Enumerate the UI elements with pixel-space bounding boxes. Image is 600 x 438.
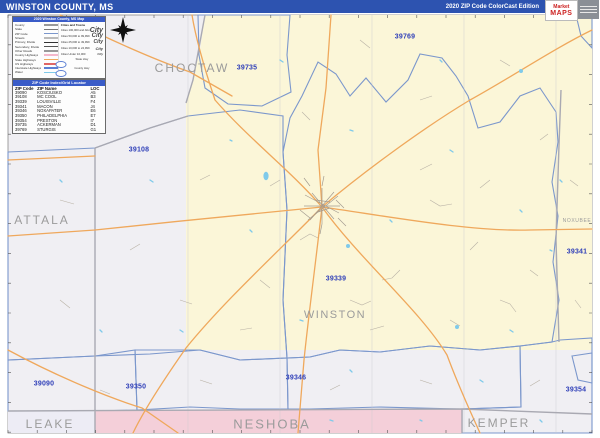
header-bar: WINSTON COUNTY, MS 2020 ZIP Code ColorCa… — [0, 0, 545, 13]
city-sample: City — [97, 52, 103, 56]
legend-item: Water — [15, 70, 58, 74]
table-row: 39769STURGISG1 — [13, 128, 105, 133]
county-label-neshoba: NESHOBA — [233, 417, 311, 432]
page-title: WINSTON COUNTY, MS — [6, 2, 114, 12]
legend-swatch — [44, 33, 58, 35]
county-label-leake: LEAKE — [26, 417, 75, 431]
marketmaps-logo: Market MAPS — [545, 0, 599, 19]
county-label-winston: WINSTON — [304, 309, 366, 321]
legend-cities-column: Cities and Towns Cities 100,000 and Abov… — [58, 23, 103, 75]
legend-swatch — [44, 54, 58, 56]
map-legend: 2020 Winston County, MS Map County State… — [12, 16, 106, 79]
logo-mark: Market MAPS — [545, 0, 578, 21]
county-label-noxubee: NOXUBEE — [563, 218, 592, 224]
legend-swatch — [44, 50, 58, 52]
legend-swatch — [44, 46, 58, 48]
zip-label-39346: 39346 — [286, 375, 306, 382]
edition-label: 2020 ZIP Code ColorCast Edition — [446, 4, 539, 10]
city-sample: City — [95, 46, 103, 51]
zip-label-39350: 39350 — [126, 384, 146, 391]
county-label-choctaw: CHOCTAW — [155, 61, 230, 75]
logo-text-bottom: MAPS — [550, 10, 572, 17]
zip-label-39090: 39090 — [34, 381, 54, 388]
legend-swatch — [44, 42, 58, 44]
zip-label-39735: 39735 — [237, 65, 257, 72]
map-page: WINSTON COUNTY, MS 2020 ZIP Code ColorCa… — [0, 0, 600, 438]
pond — [346, 244, 350, 248]
zip-label-39339: 39339 — [326, 276, 346, 283]
legend-swatch — [44, 24, 58, 26]
logo-address-block — [578, 0, 599, 19]
legend-swatch — [44, 67, 58, 69]
legend-symbols-column: County State ZIP Code Streets Primary, D… — [15, 23, 58, 75]
legend-shield-county: County Hwy — [61, 66, 103, 75]
zip-label-39354: 39354 — [566, 387, 586, 394]
county-label-attala: ATTALA — [14, 213, 70, 227]
pond — [519, 69, 523, 73]
zip-label-39108: 39108 — [129, 147, 149, 154]
legend-swatch — [44, 29, 58, 31]
legend-swatch — [44, 37, 58, 39]
county-label-kemper: KEMPER — [468, 416, 531, 430]
legend-shield-state: State Hwy — [61, 57, 103, 66]
zip-label-39769: 39769 — [395, 34, 415, 41]
legend-swatch — [44, 59, 58, 61]
pond — [455, 325, 459, 329]
zip-label-39341: 39341 — [567, 249, 587, 256]
city-sample: City — [94, 39, 103, 45]
zip-index-table: ZIP Code Index/Grid Locator ZIP Code ZIP… — [12, 79, 106, 134]
pond — [263, 172, 268, 180]
